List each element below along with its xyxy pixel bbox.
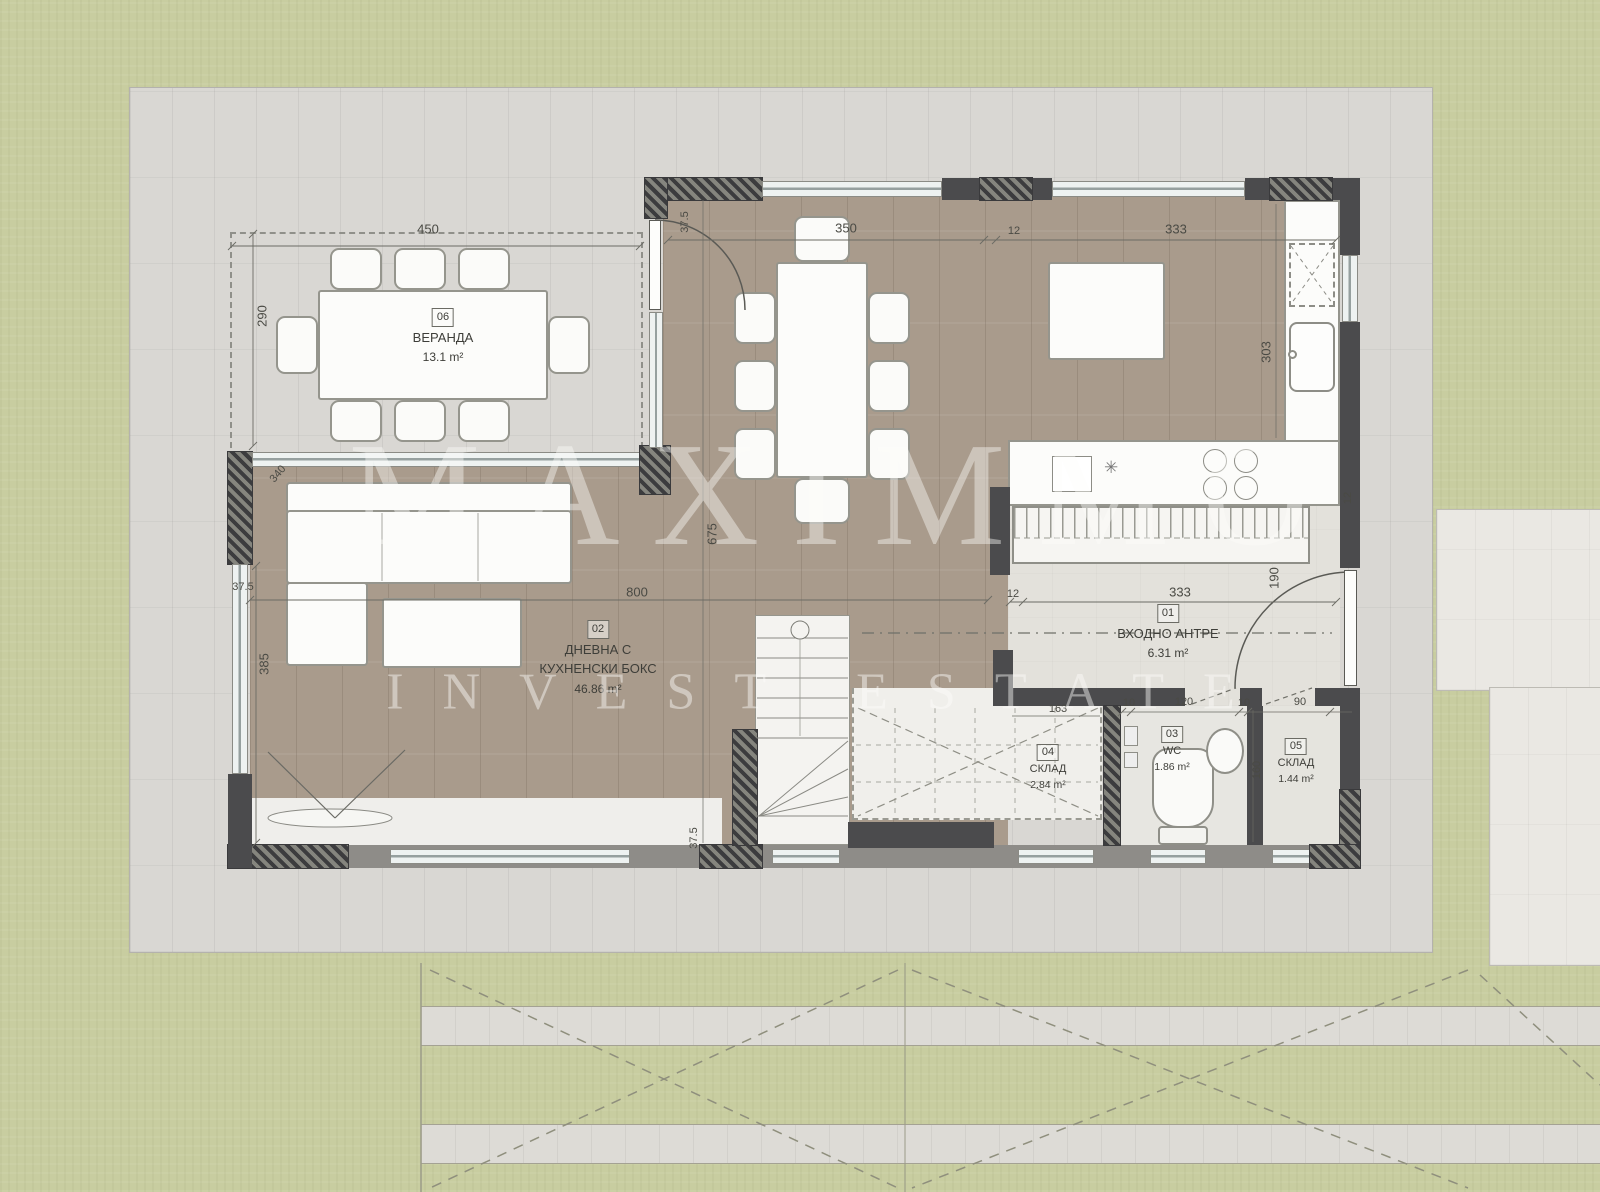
wall-east-lower-hatch [1340,790,1360,850]
wall-north-east-hatch [1270,178,1332,200]
room-area: 1.44 m² [1278,773,1314,785]
veranda-chair [458,248,510,290]
room-number: 03 [1161,726,1183,743]
room-name: КУХНЕНСКИ БОКС [539,661,656,676]
room-area: 13.1 m² [423,350,464,364]
site-plan-canvas: ✳ [0,0,1600,1192]
counter-small-sink [1052,456,1092,492]
window-main-west [649,312,663,448]
room-number: 01 [1157,604,1179,623]
dim-wall-top: 37.5 [679,211,691,232]
wall-west-wing-upper [228,452,252,564]
wall-wc-west [1104,706,1120,845]
dim-hall-span: 333 [1169,585,1191,600]
room-label-storage5: 05 СКЛАД 1.44 m² [1278,738,1315,787]
wall-north-mid-hatch [980,178,1032,200]
room-area: 2.84 m² [1030,779,1066,791]
side-path-right-upper [1437,510,1600,690]
dining-chair [868,360,910,412]
stairs-area [755,615,850,845]
veranda-chair [330,400,382,442]
dim-gap-top: 12 [1008,225,1020,237]
room-label-living: 02 ДНЕВНА С КУХНЕНСКИ БОКС 46.86 m² [539,618,656,698]
dim-kitchen-depth: 303 [1259,341,1274,363]
wall-hall-stub-upper [990,487,1010,575]
window-veranda-sliding [252,452,642,467]
window-east-sink [1342,255,1358,322]
dim-entry-door: 190 [1267,567,1282,589]
wall-south-storage4 [848,822,994,848]
dim-veranda-depth: 290 [255,305,270,327]
dim-wc-width: 120 [1175,696,1193,708]
window-south-stairs [772,849,840,864]
window-south-wc [1150,849,1206,864]
room-number: 05 [1285,738,1307,755]
dining-chair [734,428,776,480]
sofa-chaise [286,582,368,666]
veranda-chair [548,316,590,374]
dining-chair [868,292,910,344]
side-path-right-lower [1490,688,1600,965]
room-number: 06 [432,308,454,327]
room-name: WC [1163,745,1181,757]
room-number: 02 [587,620,609,639]
veranda-chair [394,248,446,290]
dim-kitchen-span: 333 [1165,222,1187,237]
window-north-dining [762,181,942,197]
wall-south-se-corner [1310,845,1360,868]
room-name: СКЛАД [1030,763,1067,775]
wall-main-west-top [645,178,667,218]
wall-east-upper [1340,178,1360,255]
dim-wall-left: 37.5 [232,581,253,593]
dining-chair [868,428,910,480]
dim-kitchen-corner: 12 [1342,492,1354,504]
veranda-chair [458,400,510,442]
room-area: 1.86 m² [1154,761,1190,773]
dim-hall-gap: 12 [1007,588,1019,600]
cooktop-burner-4 [1234,476,1258,500]
room-number: 04 [1037,744,1059,761]
cooktop-burner-3 [1203,476,1227,500]
window-west-living [232,564,248,774]
wc-basin [1206,728,1244,774]
window-south-storage4 [1018,849,1094,864]
window-north-kitchen [1052,181,1245,197]
veranda-chair [394,400,446,442]
room-area: 6.31 m² [1148,646,1189,660]
garden-path-strip-1 [421,1006,1600,1046]
room-area: 46.86 m² [574,682,621,696]
dim-storage5-width: 90 [1294,696,1306,708]
dim-stair-wall: 37.5 [688,827,700,848]
dim-living-width: 800 [626,585,648,600]
entrance-door-leaf [1344,570,1357,686]
wall-veranda-corner-block [640,446,670,494]
dining-chair [794,478,850,524]
dining-chair [734,292,776,344]
veranda-door-leaf [649,220,661,310]
room-label-veranda: 06 ВЕРАНДА 13.1 m² [413,306,474,367]
veranda-chair [330,248,382,290]
dim-living-left-depth: 385 [257,653,272,675]
counter-symbol: ✳ [1104,458,1118,478]
hall-wardrobe [1012,506,1310,564]
kitchen-island [1048,262,1165,360]
room-label-wc: 03 WC 1.86 m² [1154,726,1190,775]
wall-west-wing-lower [228,774,252,868]
cooktop-burner-2 [1234,449,1258,473]
kitchen-base-cabinet [1289,243,1335,307]
dim-dining-span: 350 [835,221,857,236]
wall-stairs-west [733,730,757,845]
garden-path-strip-2 [421,1124,1600,1164]
window-south-living [390,849,630,864]
wc-radiator [1124,726,1138,746]
sofa-seat [286,510,572,584]
wall-hall-south-c [1315,688,1360,706]
kitchen-faucet [1288,350,1297,359]
dim-living-depth: 675 [705,523,720,545]
room-name: ДНЕВНА С [565,642,632,657]
dim-storage-span: 163 [1049,703,1067,715]
dining-table [776,262,868,478]
room-name: ВЕРАНДА [413,330,474,345]
dim-wc-wall-a: 10 [1123,697,1135,709]
wall-east-mid [1340,322,1360,568]
dim-wc-depth: 160 [1251,761,1263,779]
dim-wc-wall-b: 10 [1238,697,1250,709]
room-label-hall: 01 ВХОДНО АНТРЕ 6.31 m² [1117,602,1218,663]
wall-hall-south-a [1008,688,1185,706]
dim-veranda-width: 450 [417,222,439,237]
coffee-table [382,598,522,668]
toilet-cistern [1158,826,1208,845]
cooktop-burner-1 [1203,449,1227,473]
room-label-storage4: 04 СКЛАД 2.84 m² [1030,744,1067,793]
wall-south-stairs-hatch [700,845,762,868]
veranda-chair [276,316,318,374]
room-name: СКЛАД [1278,757,1315,769]
wc-radiator [1124,752,1138,768]
room-name: ВХОДНО АНТРЕ [1117,626,1218,641]
floor-rug-south [252,798,722,845]
dining-chair [734,360,776,412]
